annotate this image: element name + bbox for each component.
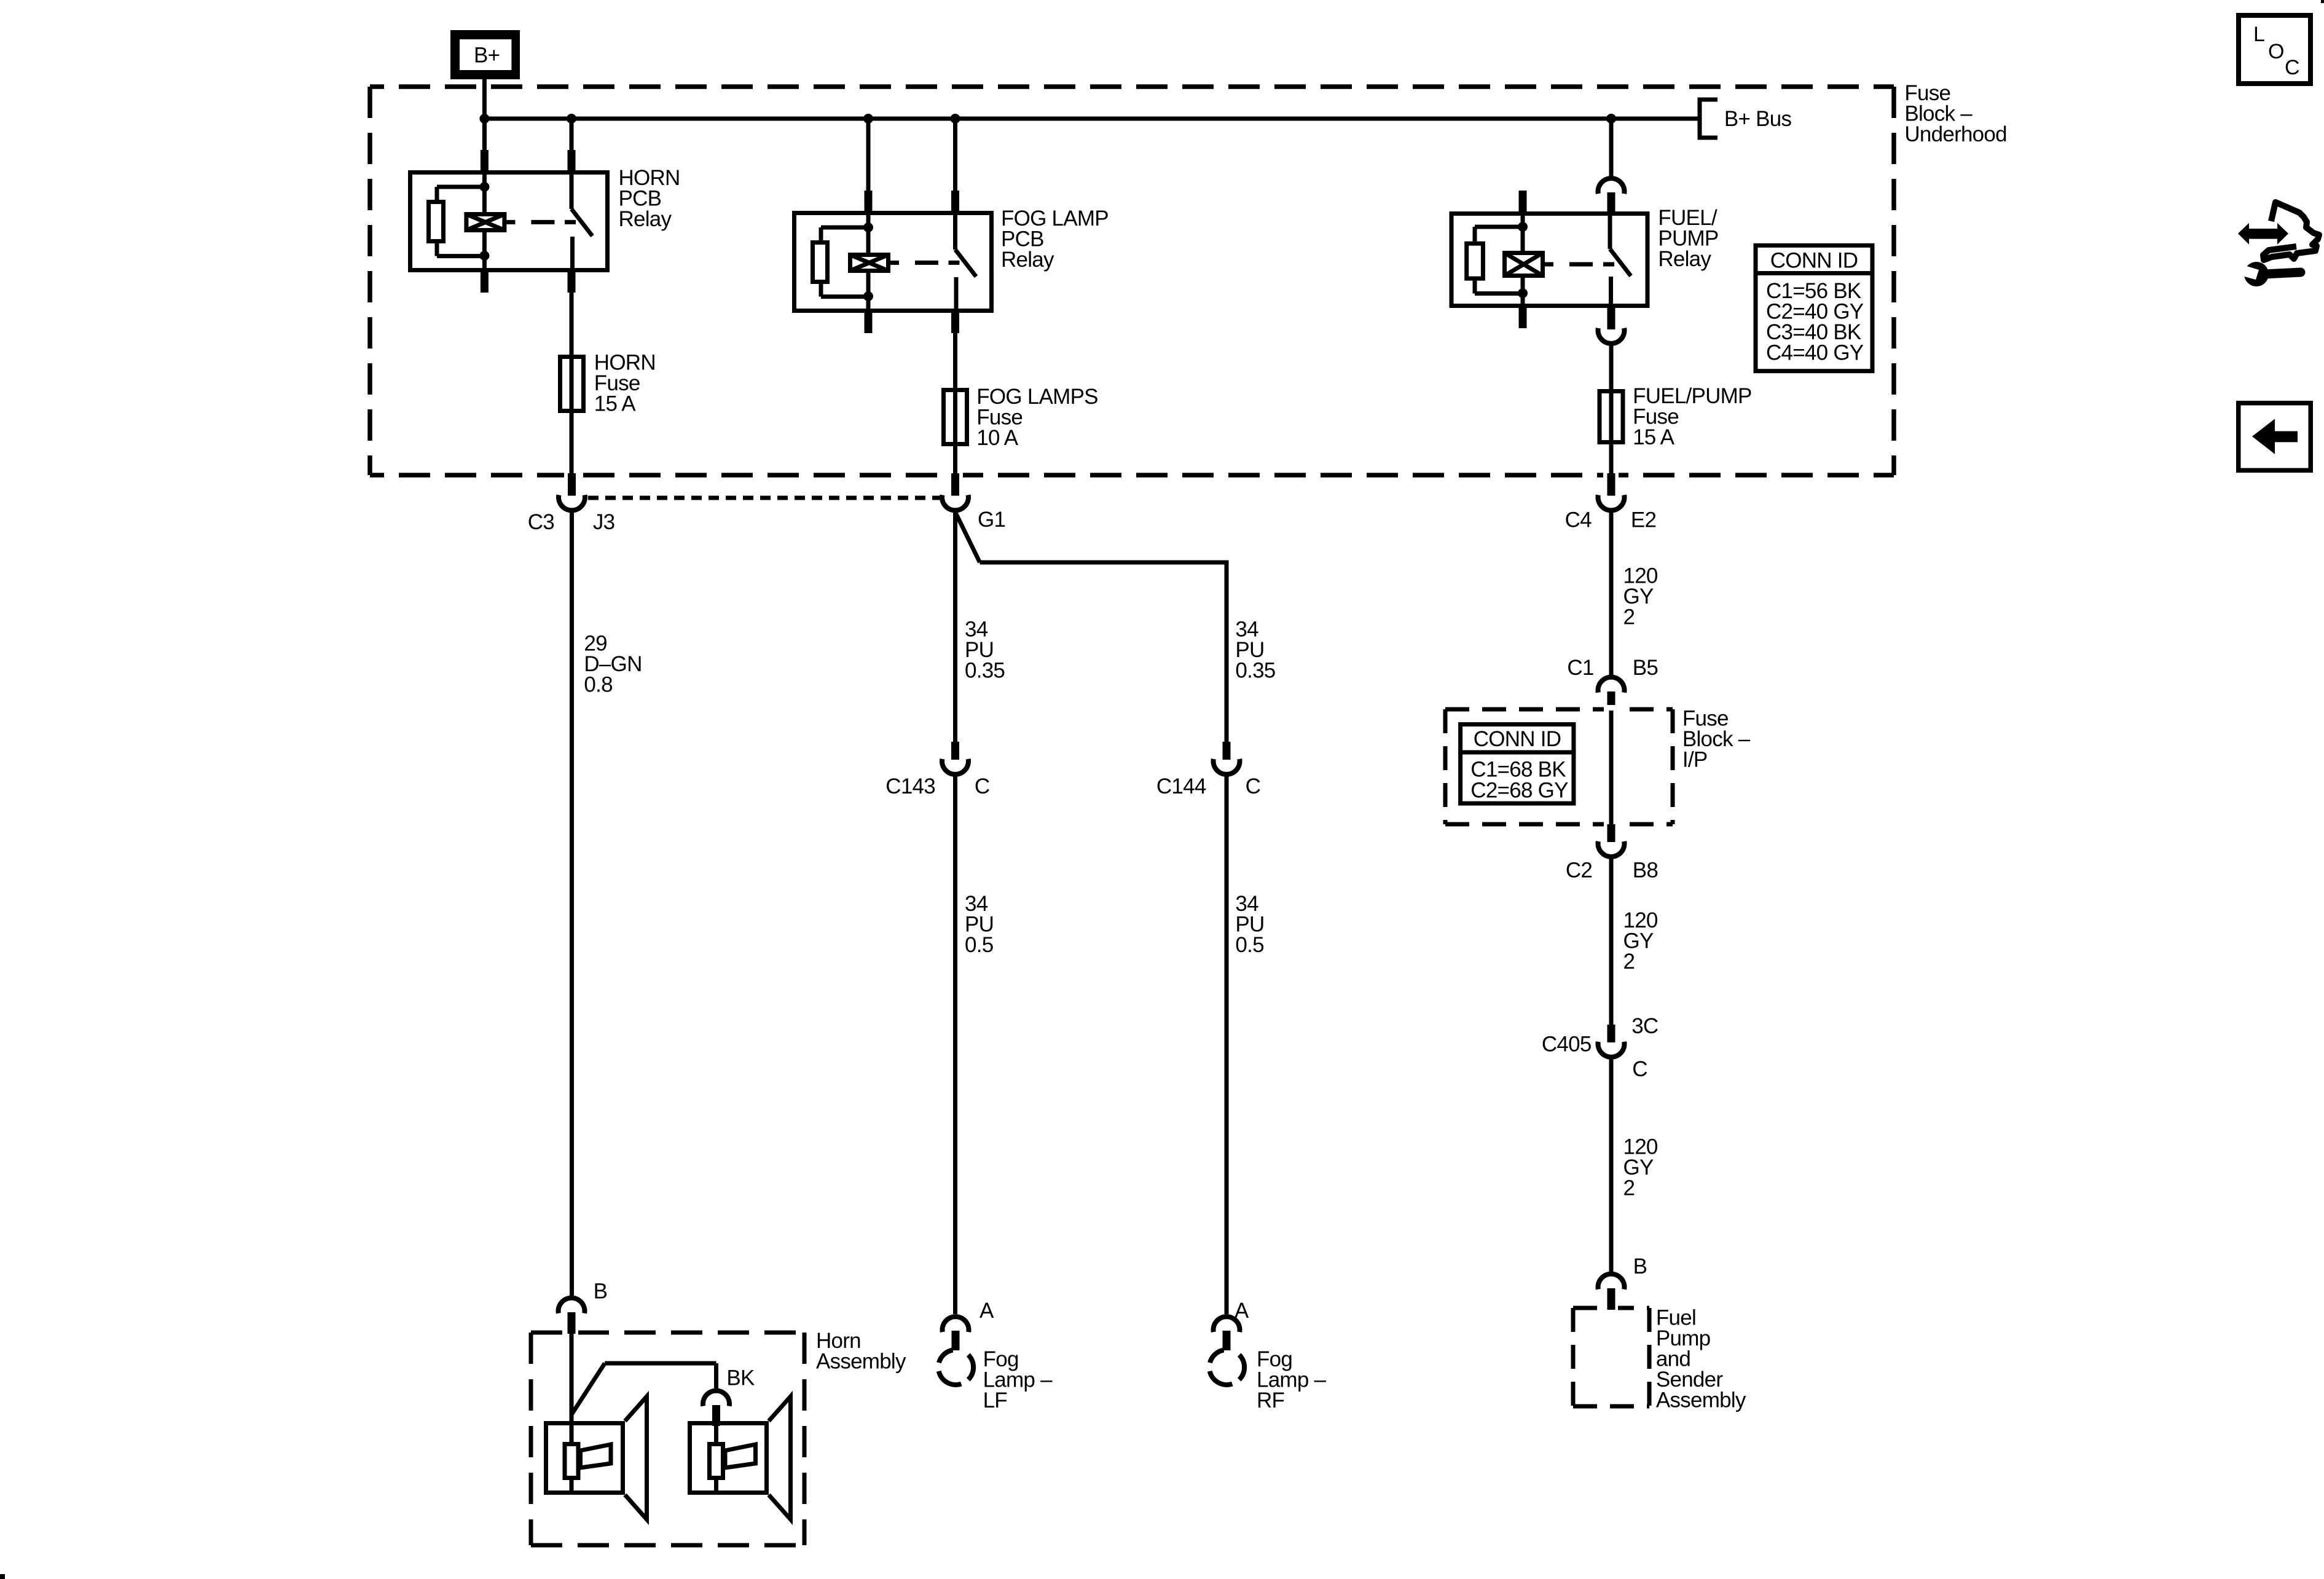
svg-text:15 A: 15 A [1633, 425, 1674, 449]
svg-text:0.35: 0.35 [965, 659, 1005, 683]
svg-text:C: C [1632, 1057, 1647, 1081]
svg-text:Assembly: Assembly [816, 1349, 906, 1373]
svg-text:C144: C144 [1156, 774, 1206, 798]
svg-text:C405: C405 [1542, 1033, 1592, 1057]
svg-text:C3: C3 [528, 510, 554, 534]
svg-text:2: 2 [1623, 950, 1635, 974]
svg-text:CONN ID: CONN ID [1474, 727, 1561, 751]
svg-text:2: 2 [1623, 605, 1635, 629]
svg-text:Relay: Relay [1658, 247, 1711, 271]
svg-text:C1: C1 [1567, 656, 1593, 680]
svg-text:3C: 3C [1631, 1014, 1658, 1038]
svg-text:10 A: 10 A [976, 426, 1018, 450]
svg-text:C4=40 GY: C4=40 GY [1766, 341, 1864, 365]
svg-text:B8: B8 [1633, 859, 1658, 883]
svg-text:C4: C4 [1565, 508, 1592, 532]
svg-text:Assembly: Assembly [1656, 1388, 1746, 1412]
svg-text:B+: B+ [474, 44, 500, 68]
svg-text:B5: B5 [1633, 656, 1658, 680]
svg-text:E2: E2 [1631, 508, 1656, 532]
svg-text:0.5: 0.5 [965, 933, 993, 957]
svg-text:0.5: 0.5 [1235, 933, 1263, 957]
svg-text:B: B [594, 1280, 608, 1304]
svg-text:15 A: 15 A [594, 392, 636, 415]
svg-text:BK: BK [726, 1366, 755, 1390]
svg-text:RF: RF [1257, 1388, 1284, 1412]
svg-text:2: 2 [1623, 1176, 1635, 1200]
svg-text:C2: C2 [1566, 859, 1592, 883]
svg-text:C1=68 BK: C1=68 BK [1470, 757, 1566, 781]
svg-text:C2=68 GY: C2=68 GY [1470, 779, 1568, 803]
svg-text:A: A [979, 1299, 994, 1323]
svg-text:L: L [2253, 23, 2264, 46]
svg-text:Relay: Relay [619, 207, 672, 231]
svg-text:C: C [2285, 56, 2299, 79]
svg-text:CONN ID: CONN ID [1770, 248, 1858, 272]
svg-text:C: C [1246, 774, 1261, 798]
svg-text:J3: J3 [593, 510, 614, 534]
svg-text:B+ Bus: B+ Bus [1724, 107, 1792, 131]
svg-text:LF: LF [983, 1388, 1007, 1412]
svg-text:0.8: 0.8 [584, 673, 612, 697]
svg-text:C: C [975, 774, 990, 798]
svg-text:C143: C143 [885, 774, 935, 798]
svg-text:O: O [2268, 40, 2284, 63]
svg-text:I/P: I/P [1682, 748, 1708, 772]
svg-text:Relay: Relay [1001, 248, 1054, 272]
svg-text:B: B [1633, 1254, 1647, 1278]
svg-text:0.35: 0.35 [1235, 659, 1275, 683]
svg-text:Underhood: Underhood [1904, 122, 2006, 146]
svg-text:G1: G1 [978, 508, 1005, 532]
